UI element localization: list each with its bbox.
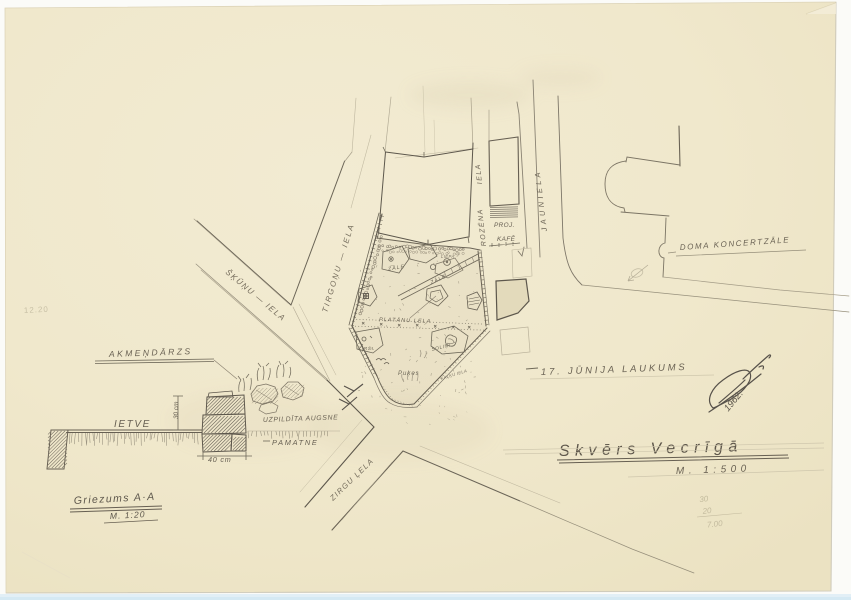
svg-text:7.00: 7.00 xyxy=(707,519,724,530)
svg-text:12.20: 12.20 xyxy=(24,305,49,315)
svg-text:40 cm: 40 cm xyxy=(208,455,232,464)
svg-text:KAFĒ: KAFĒ xyxy=(497,235,516,243)
svg-text:LIEPA: LIEPA xyxy=(441,254,455,259)
svg-text:30: 30 xyxy=(699,494,709,504)
svg-text:M. 1:20: M. 1:20 xyxy=(110,509,146,521)
svg-text:20: 20 xyxy=(701,506,712,516)
svg-text:Puķes: Puķes xyxy=(398,371,420,377)
svg-text:PAMATNE: PAMATNE xyxy=(272,438,319,447)
svg-text:30 cm: 30 cm xyxy=(173,401,180,419)
svg-text:IETVE: IETVE xyxy=(114,419,151,430)
svg-text:PROJ.: PROJ. xyxy=(494,222,515,229)
